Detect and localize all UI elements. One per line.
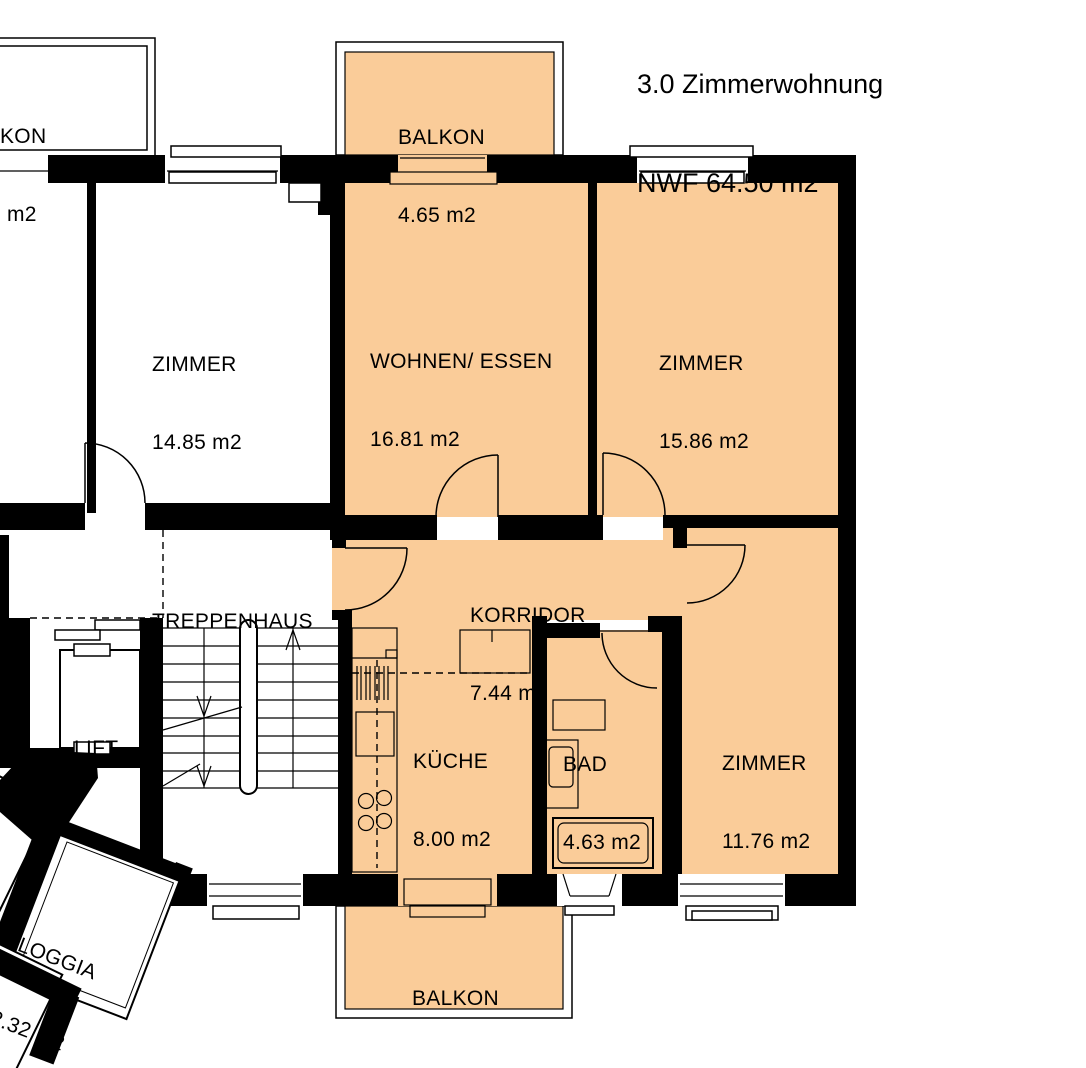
- plan-title: 3.0 Zimmerwohnung NWF 64.50 m2: [637, 2, 883, 266]
- room-label-zimmer-right: ZIMMER 15.86 m2: [659, 299, 749, 507]
- room-label-treppenhaus: TREPPENHAUS: [152, 557, 313, 687]
- room-label-neighbor-balkon: KON m2: [0, 72, 46, 280]
- room-label-lift: LIFT: [74, 684, 118, 814]
- room-label-wohnen-essen: WOHNEN/ ESSEN 16.81 m2: [370, 297, 552, 505]
- room-label-balkon-top: BALKON 4.65 m2: [398, 73, 485, 281]
- room-label-kueche: KÜCHE 8.00 m2: [413, 697, 491, 905]
- floorplan-page: 3.0 Zimmerwohnung NWF 64.50 m2 KON m2 BA…: [0, 0, 1086, 1068]
- floorplan-drawing: [0, 0, 1086, 1068]
- room-label-balkon-bottom: BALKON 4.65 m2: [412, 934, 499, 1068]
- plan-title-line1: 3.0 Zimmerwohnung: [637, 68, 883, 101]
- room-label-zimmer-bottom: ZIMMER 11.76 m2: [722, 699, 810, 907]
- room-label-zimmer-left: ZIMMER 14.85 m2: [152, 300, 242, 508]
- plan-title-line2: NWF 64.50 m2: [637, 167, 883, 200]
- room-label-bad: BAD 4.63 m2: [563, 700, 641, 908]
